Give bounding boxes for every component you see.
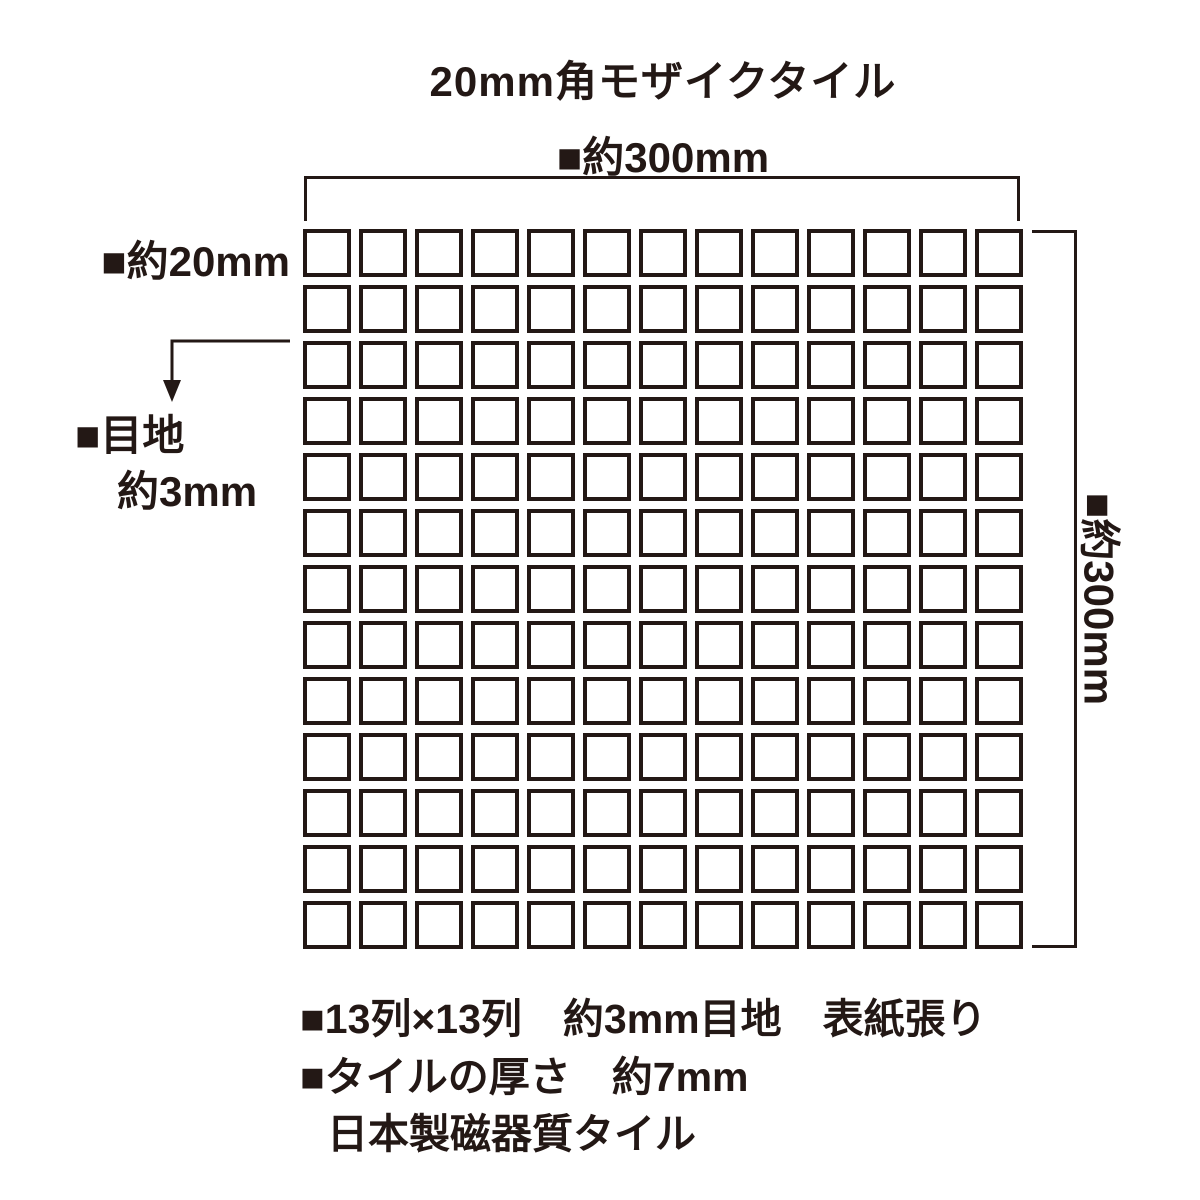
mosaic-tile bbox=[919, 677, 967, 725]
mosaic-tile bbox=[359, 397, 407, 445]
mosaic-tile bbox=[751, 621, 799, 669]
mosaic-tile bbox=[807, 229, 855, 277]
mosaic-tile bbox=[863, 621, 911, 669]
mosaic-tile bbox=[807, 845, 855, 893]
mosaic-tile bbox=[471, 397, 519, 445]
mosaic-tile bbox=[751, 509, 799, 557]
mosaic-tile bbox=[583, 789, 631, 837]
mosaic-tile bbox=[471, 677, 519, 725]
mosaic-tile bbox=[639, 453, 687, 501]
mosaic-tile bbox=[583, 565, 631, 613]
joint-size-label: 約3mm bbox=[117, 458, 257, 519]
mosaic-tile bbox=[807, 789, 855, 837]
mosaic-tile bbox=[919, 621, 967, 669]
mosaic-tile bbox=[471, 901, 519, 949]
mosaic-tile bbox=[415, 285, 463, 333]
mosaic-tile bbox=[751, 677, 799, 725]
note-tile-thickness: ■タイルの厚さ 約7mm bbox=[300, 1043, 748, 1103]
tile-sheet-diagram: 20mm角モザイクタイル ■約300mm ■約300mm ■約20mm ■目地 … bbox=[0, 0, 1200, 1200]
mosaic-tile bbox=[919, 509, 967, 557]
mosaic-tile bbox=[863, 509, 911, 557]
mosaic-tile bbox=[807, 677, 855, 725]
note-grid-spec: ■13列×13列 約3mm目地 表紙張り bbox=[300, 985, 987, 1045]
mosaic-tile bbox=[751, 565, 799, 613]
mosaic-tile bbox=[471, 509, 519, 557]
note-material-origin: 日本製磁器質タイル bbox=[327, 1100, 696, 1160]
right-height-bracket bbox=[1032, 230, 1077, 948]
mosaic-tile bbox=[471, 565, 519, 613]
mosaic-tile bbox=[359, 229, 407, 277]
mosaic-tile bbox=[807, 397, 855, 445]
mosaic-tile bbox=[695, 565, 743, 613]
mosaic-tile bbox=[695, 453, 743, 501]
mosaic-tile bbox=[807, 453, 855, 501]
mosaic-tile bbox=[303, 341, 351, 389]
mosaic-tile bbox=[695, 285, 743, 333]
mosaic-tile bbox=[415, 341, 463, 389]
mosaic-tile bbox=[583, 621, 631, 669]
mosaic-tile bbox=[303, 397, 351, 445]
mosaic-tile bbox=[863, 341, 911, 389]
mosaic-tile bbox=[303, 565, 351, 613]
mosaic-tile bbox=[807, 565, 855, 613]
mosaic-tile bbox=[751, 285, 799, 333]
mosaic-tile bbox=[639, 789, 687, 837]
mosaic-tile bbox=[359, 789, 407, 837]
mosaic-tile bbox=[639, 341, 687, 389]
mosaic-tile bbox=[863, 845, 911, 893]
mosaic-tile bbox=[303, 845, 351, 893]
mosaic-tile bbox=[527, 677, 575, 725]
mosaic-tile bbox=[303, 229, 351, 277]
mosaic-tile bbox=[303, 789, 351, 837]
mosaic-tile bbox=[415, 229, 463, 277]
mosaic-tile bbox=[695, 901, 743, 949]
mosaic-tile bbox=[583, 845, 631, 893]
mosaic-tile bbox=[863, 453, 911, 501]
mosaic-tile bbox=[919, 789, 967, 837]
mosaic-tile bbox=[863, 565, 911, 613]
mosaic-tile bbox=[639, 733, 687, 781]
mosaic-tile bbox=[527, 621, 575, 669]
mosaic-tile bbox=[359, 733, 407, 781]
mosaic-tile bbox=[807, 901, 855, 949]
mosaic-tile bbox=[415, 397, 463, 445]
mosaic-tile bbox=[639, 845, 687, 893]
mosaic-tile bbox=[583, 397, 631, 445]
mosaic-tile bbox=[695, 677, 743, 725]
mosaic-tile bbox=[919, 285, 967, 333]
mosaic-tile bbox=[975, 285, 1023, 333]
mosaic-tile bbox=[303, 285, 351, 333]
mosaic-tile bbox=[527, 789, 575, 837]
mosaic-tile bbox=[975, 397, 1023, 445]
mosaic-tile bbox=[639, 565, 687, 613]
mosaic-tile bbox=[583, 733, 631, 781]
mosaic-tile bbox=[415, 565, 463, 613]
mosaic-tile bbox=[415, 845, 463, 893]
mosaic-tile bbox=[695, 341, 743, 389]
mosaic-tile bbox=[919, 901, 967, 949]
mosaic-tile bbox=[751, 789, 799, 837]
mosaic-tile bbox=[303, 621, 351, 669]
mosaic-tile bbox=[975, 341, 1023, 389]
mosaic-tile bbox=[471, 341, 519, 389]
right-height-label: ■約300mm bbox=[1072, 493, 1133, 705]
mosaic-tile bbox=[919, 565, 967, 613]
mosaic-tile bbox=[863, 901, 911, 949]
mosaic-tile bbox=[863, 285, 911, 333]
mosaic-tile bbox=[415, 677, 463, 725]
mosaic-tile bbox=[359, 341, 407, 389]
tile-grid bbox=[303, 229, 1023, 949]
diagram-title: 20mm角モザイクタイル bbox=[303, 48, 1023, 109]
top-width-bracket bbox=[304, 176, 1020, 221]
mosaic-tile bbox=[975, 733, 1023, 781]
mosaic-tile bbox=[415, 789, 463, 837]
mosaic-tile bbox=[527, 509, 575, 557]
mosaic-tile bbox=[303, 733, 351, 781]
mosaic-tile bbox=[807, 733, 855, 781]
mosaic-tile bbox=[975, 901, 1023, 949]
mosaic-tile bbox=[303, 677, 351, 725]
mosaic-tile bbox=[975, 229, 1023, 277]
mosaic-tile bbox=[639, 901, 687, 949]
mosaic-tile bbox=[975, 565, 1023, 613]
mosaic-tile bbox=[583, 453, 631, 501]
mosaic-tile bbox=[527, 453, 575, 501]
mosaic-tile bbox=[639, 677, 687, 725]
mosaic-tile bbox=[303, 509, 351, 557]
mosaic-tile bbox=[359, 621, 407, 669]
mosaic-tile bbox=[695, 845, 743, 893]
mosaic-tile bbox=[919, 733, 967, 781]
mosaic-tile bbox=[639, 397, 687, 445]
mosaic-tile bbox=[863, 677, 911, 725]
mosaic-tile bbox=[359, 845, 407, 893]
mosaic-tile bbox=[303, 901, 351, 949]
mosaic-tile bbox=[751, 901, 799, 949]
mosaic-tile bbox=[415, 509, 463, 557]
mosaic-tile bbox=[975, 453, 1023, 501]
joint-arrow-head bbox=[163, 380, 181, 402]
mosaic-tile bbox=[751, 397, 799, 445]
mosaic-tile bbox=[919, 341, 967, 389]
mosaic-tile bbox=[639, 621, 687, 669]
mosaic-tile bbox=[359, 509, 407, 557]
mosaic-tile bbox=[583, 285, 631, 333]
mosaic-tile bbox=[583, 901, 631, 949]
mosaic-tile bbox=[415, 621, 463, 669]
mosaic-tile bbox=[975, 509, 1023, 557]
mosaic-tile bbox=[583, 677, 631, 725]
mosaic-tile bbox=[919, 229, 967, 277]
mosaic-tile bbox=[527, 285, 575, 333]
mosaic-tile bbox=[359, 453, 407, 501]
mosaic-tile bbox=[303, 453, 351, 501]
joint-label: ■目地 bbox=[75, 402, 184, 463]
mosaic-tile bbox=[359, 285, 407, 333]
mosaic-tile bbox=[415, 901, 463, 949]
tile-size-label: ■約20mm bbox=[101, 228, 290, 289]
mosaic-tile bbox=[863, 397, 911, 445]
mosaic-tile bbox=[807, 621, 855, 669]
mosaic-tile bbox=[471, 453, 519, 501]
mosaic-tile bbox=[975, 621, 1023, 669]
mosaic-tile bbox=[695, 621, 743, 669]
mosaic-tile bbox=[863, 789, 911, 837]
mosaic-tile bbox=[359, 677, 407, 725]
mosaic-tile bbox=[807, 509, 855, 557]
mosaic-tile bbox=[975, 845, 1023, 893]
mosaic-tile bbox=[695, 397, 743, 445]
mosaic-tile bbox=[639, 509, 687, 557]
mosaic-tile bbox=[527, 565, 575, 613]
mosaic-tile bbox=[751, 453, 799, 501]
mosaic-tile bbox=[527, 733, 575, 781]
mosaic-tile bbox=[695, 789, 743, 837]
mosaic-tile bbox=[583, 341, 631, 389]
mosaic-tile bbox=[863, 733, 911, 781]
mosaic-tile bbox=[863, 229, 911, 277]
mosaic-tile bbox=[471, 845, 519, 893]
mosaic-tile bbox=[471, 229, 519, 277]
mosaic-tile bbox=[359, 565, 407, 613]
mosaic-tile bbox=[695, 733, 743, 781]
mosaic-tile bbox=[751, 733, 799, 781]
mosaic-tile bbox=[919, 453, 967, 501]
mosaic-tile bbox=[695, 229, 743, 277]
mosaic-tile bbox=[471, 621, 519, 669]
mosaic-tile bbox=[975, 677, 1023, 725]
mosaic-tile bbox=[583, 229, 631, 277]
mosaic-tile bbox=[527, 229, 575, 277]
mosaic-tile bbox=[919, 845, 967, 893]
mosaic-tile bbox=[415, 453, 463, 501]
mosaic-tile bbox=[415, 733, 463, 781]
mosaic-tile bbox=[527, 341, 575, 389]
mosaic-tile bbox=[527, 901, 575, 949]
mosaic-tile bbox=[751, 341, 799, 389]
mosaic-tile bbox=[975, 789, 1023, 837]
mosaic-tile bbox=[527, 845, 575, 893]
mosaic-tile bbox=[639, 285, 687, 333]
mosaic-tile bbox=[583, 509, 631, 557]
mosaic-tile bbox=[751, 229, 799, 277]
mosaic-tile bbox=[751, 845, 799, 893]
mosaic-tile bbox=[359, 901, 407, 949]
mosaic-tile bbox=[639, 229, 687, 277]
mosaic-tile bbox=[807, 285, 855, 333]
mosaic-tile bbox=[471, 789, 519, 837]
mosaic-tile bbox=[527, 397, 575, 445]
joint-pointer-arrow bbox=[160, 330, 300, 410]
mosaic-tile bbox=[807, 341, 855, 389]
mosaic-tile bbox=[471, 285, 519, 333]
mosaic-tile bbox=[919, 397, 967, 445]
mosaic-tile bbox=[471, 733, 519, 781]
mosaic-tile bbox=[695, 509, 743, 557]
joint-arrow-line bbox=[172, 341, 290, 382]
